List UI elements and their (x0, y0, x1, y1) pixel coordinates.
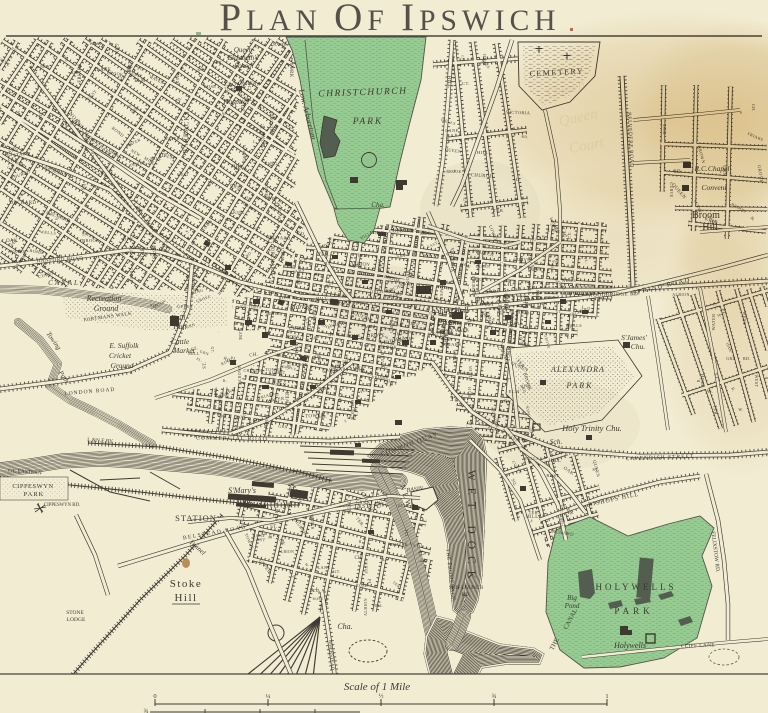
svg-text:CH.: CH. (405, 528, 409, 535)
svg-text:ALBION: ALBION (363, 598, 368, 616)
svg-text:Chu.: Chu. (631, 342, 646, 351)
svg-text:Ch.: Ch. (503, 280, 513, 288)
svg-text:S'James': S'James' (621, 333, 647, 342)
svg-text:RD.: RD. (71, 70, 79, 75)
svg-text:CHURCH: CHURCH (350, 400, 355, 420)
svg-text:WATER: WATER (164, 136, 180, 141)
svg-text:UPPER: UPPER (452, 350, 456, 364)
svg-text:CURVE: CURVE (289, 327, 307, 332)
svg-text:MILL: MILL (525, 515, 538, 520)
svg-text:LOWER: LOWER (390, 542, 409, 547)
svg-text:GT.: GT. (210, 347, 214, 354)
svg-text:STAR: STAR (141, 247, 146, 261)
svg-text:¾: ¾ (492, 693, 497, 700)
svg-text:CH.: CH. (354, 556, 363, 561)
svg-text:FRIARS: FRIARS (372, 376, 388, 380)
svg-text:MILL: MILL (296, 273, 301, 285)
svg-text:W.: W. (17, 109, 22, 115)
svg-text:L.: L. (507, 378, 512, 382)
svg-text:S: S (128, 105, 132, 107)
svg-text:KING: KING (233, 210, 245, 215)
svg-text:L.: L. (253, 139, 258, 144)
svg-text:CIPPESWYN RD.: CIPPESWYN RD. (44, 503, 80, 508)
svg-text:HOLYWELLS: HOLYWELLS (595, 582, 676, 592)
svg-text:Cha.: Cha. (237, 496, 252, 505)
svg-text:CT.: CT. (65, 55, 69, 62)
svg-text:ELM: ELM (294, 344, 298, 353)
svg-text:NEW: NEW (234, 167, 246, 172)
svg-text:UPPER: UPPER (177, 304, 193, 309)
svg-text:BROOK: BROOK (82, 238, 100, 243)
svg-text:WATER: WATER (10, 249, 27, 254)
svg-text:SQ.: SQ. (82, 182, 87, 191)
svg-text:QUEEN: QUEEN (476, 265, 491, 269)
svg-text:GT.: GT. (556, 310, 563, 314)
svg-text:GRN: GRN (397, 254, 406, 258)
svg-text:GRN: GRN (278, 424, 288, 430)
svg-text:R.: R. (324, 261, 329, 266)
svg-text:OAK: OAK (247, 310, 251, 319)
svg-text:L.: L. (242, 518, 247, 523)
svg-text:W.: W. (11, 238, 16, 242)
svg-text:Stoke: Stoke (170, 578, 203, 590)
svg-text:YORK: YORK (286, 334, 301, 340)
svg-text:PARK: PARK (352, 117, 384, 127)
svg-text:PARK: PARK (614, 606, 653, 616)
svg-text:WATER: WATER (310, 514, 315, 530)
svg-text:Big: Big (567, 594, 577, 602)
svg-text:COMMERCIAL ROAD: COMMERCIAL ROAD (196, 435, 268, 442)
svg-text:VICTORIA: VICTORIA (269, 111, 274, 133)
svg-text:RD.: RD. (462, 592, 471, 598)
svg-text:PARK: PARK (24, 491, 45, 498)
svg-text:RD.: RD. (213, 387, 218, 396)
svg-text:KING: KING (176, 72, 180, 83)
svg-text:Scale of 1 Mile: Scale of 1 Mile (344, 681, 410, 693)
svg-text:0: 0 (153, 693, 156, 700)
svg-text:1: 1 (605, 693, 608, 700)
svg-text:Elizabeth's: Elizabeth's (227, 54, 259, 62)
svg-text:PL.: PL. (366, 579, 372, 587)
svg-text:CHURCH: CHURCH (243, 368, 262, 373)
svg-text:L.: L. (581, 306, 587, 311)
svg-text:School: School (234, 62, 253, 70)
svg-text:BOND: BOND (262, 131, 267, 146)
svg-text:COBBOLD S.: COBBOLD S. (389, 228, 418, 234)
svg-text:Market: Market (172, 346, 196, 355)
svg-text:CURVE: CURVE (266, 312, 281, 316)
svg-text:HIGH: HIGH (290, 483, 295, 495)
svg-text:WEST: WEST (480, 303, 495, 308)
svg-text:QUEEN: QUEEN (469, 365, 473, 380)
svg-text:CHURCH: CHURCH (274, 499, 279, 521)
svg-text:PL.: PL. (497, 312, 503, 316)
svg-text:ST.: ST. (119, 74, 126, 80)
svg-text:Ground: Ground (110, 361, 133, 370)
svg-text:CROWN: CROWN (238, 365, 242, 381)
svg-text:UPPER: UPPER (502, 293, 507, 311)
svg-text:ALBION: ALBION (278, 550, 294, 554)
svg-text:Queen: Queen (234, 46, 253, 54)
svg-text:HILL: HILL (150, 156, 161, 161)
svg-text:SQ.: SQ. (438, 263, 443, 270)
svg-text:Cha.: Cha. (371, 201, 385, 209)
svg-text:GRN: GRN (535, 289, 540, 300)
svg-text:Cattle: Cattle (171, 337, 190, 346)
svg-text:GROVE: GROVE (129, 268, 133, 283)
svg-text:KING: KING (264, 161, 277, 166)
svg-text:ROSE: ROSE (312, 597, 323, 601)
svg-text:VICTORIA: VICTORIA (240, 305, 262, 310)
svg-text:Prison: Prison (436, 318, 458, 327)
svg-text:Hill: Hill (174, 592, 197, 604)
svg-text:BOND: BOND (370, 230, 385, 235)
svg-text:INSTITU: INSTITU (353, 503, 382, 510)
svg-text:NEW: NEW (40, 65, 50, 69)
svg-text:HILL: HILL (316, 296, 327, 301)
svg-text:R.: R. (238, 315, 243, 320)
svg-text:CURVE: CURVE (364, 560, 368, 575)
svg-text:GROVE: GROVE (153, 241, 158, 260)
svg-text:Sch.: Sch. (309, 587, 320, 594)
svg-text:R.: R. (359, 540, 363, 544)
svg-text:ELM: ELM (358, 253, 368, 258)
svg-text:WEST: WEST (177, 173, 189, 177)
svg-text:LANE: LANE (238, 329, 242, 341)
svg-text:ALEXANDRA: ALEXANDRA (550, 365, 605, 374)
svg-text:YORK: YORK (288, 62, 293, 78)
svg-text:KING: KING (348, 499, 353, 513)
svg-text:Holywells: Holywells (613, 641, 646, 650)
svg-text:CH.: CH. (342, 360, 349, 364)
svg-text:CLIFF LANE: CLIFF LANE (681, 642, 715, 649)
svg-text:L.: L. (3, 118, 7, 122)
svg-text:LANE: LANE (445, 128, 459, 133)
svg-text:Market: Market (289, 303, 311, 311)
svg-text:E. Suffolk: E. Suffolk (108, 341, 139, 350)
svg-text:¼: ¼ (266, 693, 271, 700)
svg-text:CROWN: CROWN (219, 395, 224, 416)
svg-text:R.: R. (261, 123, 266, 128)
svg-text:S'Mary's: S'Mary's (228, 486, 256, 495)
svg-text:Hall: Hall (172, 322, 186, 331)
svg-text:MILL: MILL (352, 367, 365, 372)
svg-text:CROWN: CROWN (242, 144, 247, 161)
svg-text:PL.: PL. (381, 364, 389, 369)
svg-text:PL.: PL. (441, 278, 446, 286)
svg-text:UPPER: UPPER (316, 387, 330, 391)
svg-text:Cricket: Cricket (109, 351, 132, 360)
svg-text:WET DOCK: WET DOCK (465, 470, 477, 586)
svg-text:WEST: WEST (90, 41, 103, 46)
svg-text:VICTORIA: VICTORIA (559, 504, 564, 527)
svg-text:ROSE: ROSE (546, 473, 559, 478)
svg-text:TER.: TER. (318, 253, 330, 258)
svg-text:Ch.: Ch. (268, 237, 278, 245)
svg-text:CANAL: CANAL (48, 279, 80, 287)
svg-text:SHIP LAUNCH: SHIP LAUNCH (449, 585, 483, 591)
svg-text:GT.: GT. (307, 321, 312, 329)
svg-text:WELLS: WELLS (566, 323, 582, 328)
svg-text:SQ.: SQ. (424, 253, 432, 258)
svg-text:HIGH: HIGH (467, 386, 472, 399)
svg-text:BROOK: BROOK (379, 346, 398, 351)
svg-text:¾: ¾ (144, 708, 149, 713)
svg-text:PL.: PL. (137, 66, 145, 71)
svg-text:W.: W. (566, 508, 572, 513)
svg-text:ORCHARD: ORCHARD (10, 201, 37, 206)
svg-text:Recreation: Recreation (86, 294, 122, 303)
svg-text:HILL: HILL (373, 604, 383, 608)
svg-text:LANE: LANE (315, 415, 327, 419)
svg-text:GT.: GT. (239, 105, 244, 113)
svg-text:TER.: TER. (524, 295, 529, 306)
svg-text:PLAN OF IPSWICH: PLAN OF IPSWICH (219, 0, 560, 39)
svg-text:STAR: STAR (527, 282, 532, 294)
svg-text:LANE: LANE (317, 565, 330, 570)
svg-text:R.: R. (223, 378, 228, 383)
svg-text:STONE: STONE (66, 610, 84, 616)
svg-text:TOWER: TOWER (265, 367, 283, 372)
svg-text:Drill: Drill (170, 313, 186, 322)
svg-text:R.: R. (323, 340, 328, 346)
svg-text:TER.: TER. (207, 178, 211, 187)
svg-text:PL.: PL. (136, 207, 144, 212)
svg-text:Ground: Ground (94, 304, 120, 313)
svg-text:SQ.: SQ. (38, 111, 43, 119)
svg-text:CH.: CH. (247, 82, 252, 91)
svg-text:TER.: TER. (212, 60, 223, 65)
svg-text:R.: R. (35, 214, 40, 219)
svg-text:ROSE: ROSE (204, 84, 217, 89)
svg-text:R.: R. (269, 533, 274, 538)
svg-text:L.: L. (383, 558, 387, 562)
svg-text:GT.: GT. (333, 569, 341, 574)
svg-text:LANE: LANE (90, 149, 95, 162)
svg-text:STATION: STATION (175, 513, 217, 523)
svg-text:Shire Hall: Shire Hall (436, 306, 470, 315)
svg-text:CT.: CT. (462, 81, 470, 86)
svg-text:TOWER: TOWER (286, 391, 291, 411)
svg-text:CIPPESWYN: CIPPESWYN (12, 483, 53, 490)
svg-text:Hospital: Hospital (222, 97, 249, 106)
svg-text:SQ.: SQ. (150, 303, 158, 308)
svg-text:ST.: ST. (203, 361, 208, 369)
svg-text:½: ½ (379, 693, 384, 700)
svg-text:ELM: ELM (134, 79, 146, 84)
svg-text:ROSE: ROSE (456, 371, 469, 376)
svg-text:ST.: ST. (270, 525, 278, 530)
svg-text:LODGE: LODGE (67, 617, 86, 623)
svg-text:GRN: GRN (113, 43, 118, 54)
svg-text:MILL: MILL (264, 419, 269, 431)
svg-text:WATER: WATER (273, 43, 287, 47)
svg-text:W.: W. (252, 226, 258, 232)
svg-text:ORCHARD: ORCHARD (269, 248, 274, 275)
svg-text:Cha.: Cha. (337, 622, 352, 631)
svg-text:GT.: GT. (225, 217, 233, 222)
